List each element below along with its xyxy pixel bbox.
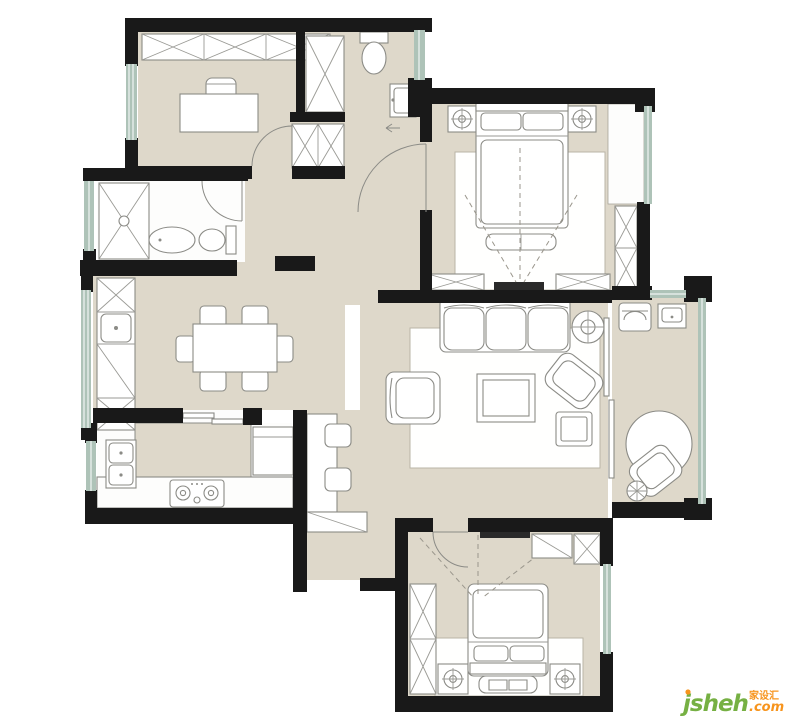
nook-chair [325,468,351,491]
sofa-cushion [444,308,484,350]
headboard-2 [470,663,546,674]
dining-passage-floor [233,260,275,278]
kitchen-west-window [86,441,96,491]
shower-drain [119,216,129,226]
sideboard [97,278,135,430]
master-tv [494,282,544,290]
washing-machine [619,303,651,331]
balcony-east-window [698,298,706,504]
floor-plan-drawing: jsheh 家设汇 .com [0,0,800,720]
toilet-tank-2 [226,226,236,254]
foot-bench-2 [479,676,537,693]
foyer-east-window [414,30,425,80]
nook-chair [325,424,351,447]
kitchen-counter [135,423,251,477]
bedroom2-east-window [603,564,611,654]
entry-door-handle [391,98,394,101]
pillow [474,646,508,661]
plant [627,481,647,501]
bay-window-floor [608,104,644,204]
bedroom2-bed [468,584,548,676]
dining-chair [200,370,226,391]
watermark-tld: .com [749,700,784,715]
pillow-right [523,113,563,130]
balcony-top-window [650,290,686,298]
study-west-window [126,64,137,140]
vanity-basin [149,227,195,253]
armchair [386,372,440,424]
coffee-table [477,374,535,422]
dining-chair [242,370,268,391]
study-doorway-floor [252,164,292,180]
toilet-tank [360,32,388,43]
dining-west-window [81,290,91,428]
study-desk [180,94,258,132]
bedroom2-tv [480,531,530,538]
pillow-left [481,113,521,130]
toilet-bowl [362,42,386,74]
pillow [510,646,544,661]
sofa-cushion [528,308,568,350]
toilet-bowl-2 [199,229,225,251]
bathroom-west-window [84,181,94,251]
floor-plan-page: jsheh 家设汇 .com [0,0,800,720]
dining-chair [176,336,195,362]
sofa-cushion [486,308,526,350]
watermark-j-dot [685,689,690,694]
kitchen-sink-unit [106,440,136,488]
watermark: jsheh 家设汇 .com [680,689,784,717]
watermark-brand: jsheh [680,691,749,717]
master-bay-window [644,106,652,204]
dining-table [193,324,277,372]
refrigerator [253,427,293,475]
